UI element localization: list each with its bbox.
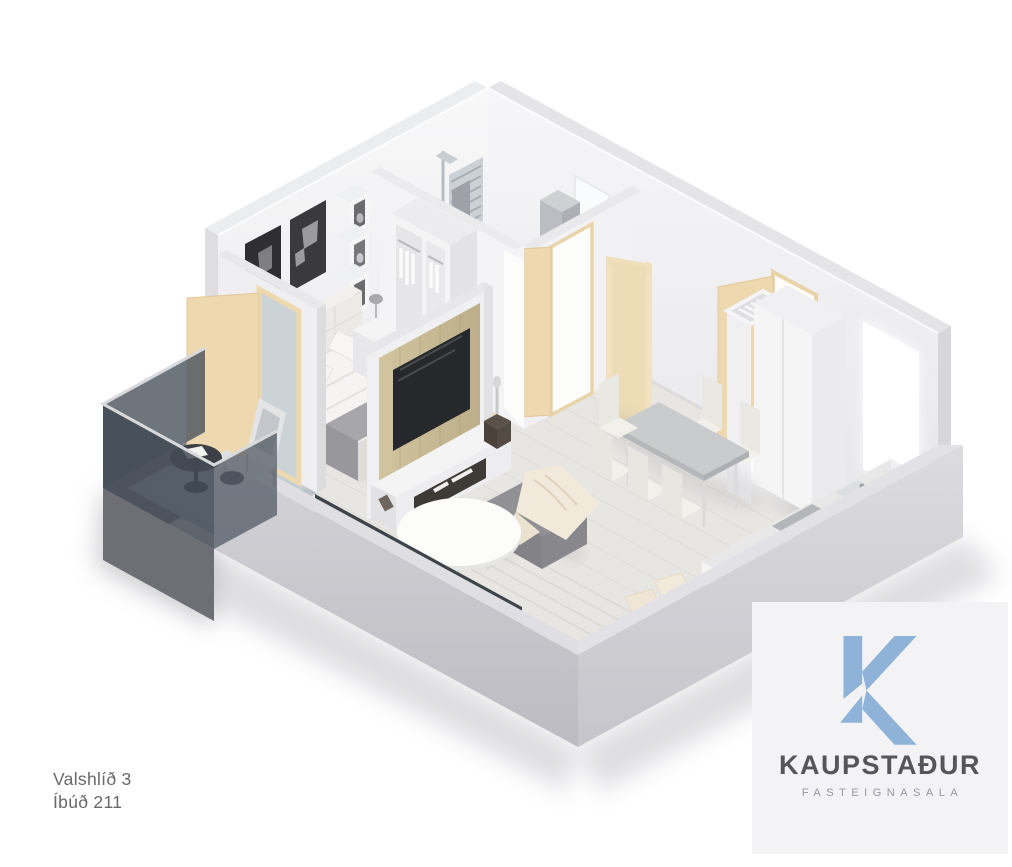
p1-door-gap bbox=[504, 250, 524, 429]
agency-logo-panel: KAUPSTAÐUR FASTEIGNASALA bbox=[752, 602, 1008, 854]
logo-tagline: FASTEIGNASALA bbox=[752, 787, 1008, 799]
logo-k-mark bbox=[840, 636, 917, 745]
logo-words: KAUPSTAÐUR FASTEIGNASALA bbox=[752, 750, 1008, 799]
logo-company-name: KAUPSTAÐUR bbox=[752, 750, 1008, 781]
floor-plan-page: Valshlíð 3 Íbúð 211 KAUPSTAÐUR FASTEIGNA… bbox=[0, 0, 1012, 867]
unit-line: Íbúð 211 bbox=[53, 791, 132, 814]
k-stem bbox=[844, 636, 863, 699]
lamp2-shade bbox=[369, 294, 383, 304]
bath-doorway-gap bbox=[551, 224, 592, 415]
address-line: Valshlíð 3 bbox=[53, 768, 132, 791]
cube2-vase bbox=[357, 253, 364, 263]
white-closet bbox=[754, 285, 846, 515]
closet-side bbox=[812, 317, 846, 515]
sculpture-head bbox=[493, 376, 501, 388]
door2-post-right bbox=[646, 261, 652, 429]
agency-logo bbox=[752, 602, 1008, 854]
cube1-vase bbox=[357, 213, 364, 223]
k-lower-arm bbox=[862, 690, 916, 744]
w6-endcap bbox=[317, 304, 326, 493]
plan-annotation: Valshlíð 3 Íbúð 211 bbox=[53, 768, 132, 814]
k-upper-arm bbox=[862, 636, 916, 690]
k-stem-triangle bbox=[840, 696, 862, 723]
